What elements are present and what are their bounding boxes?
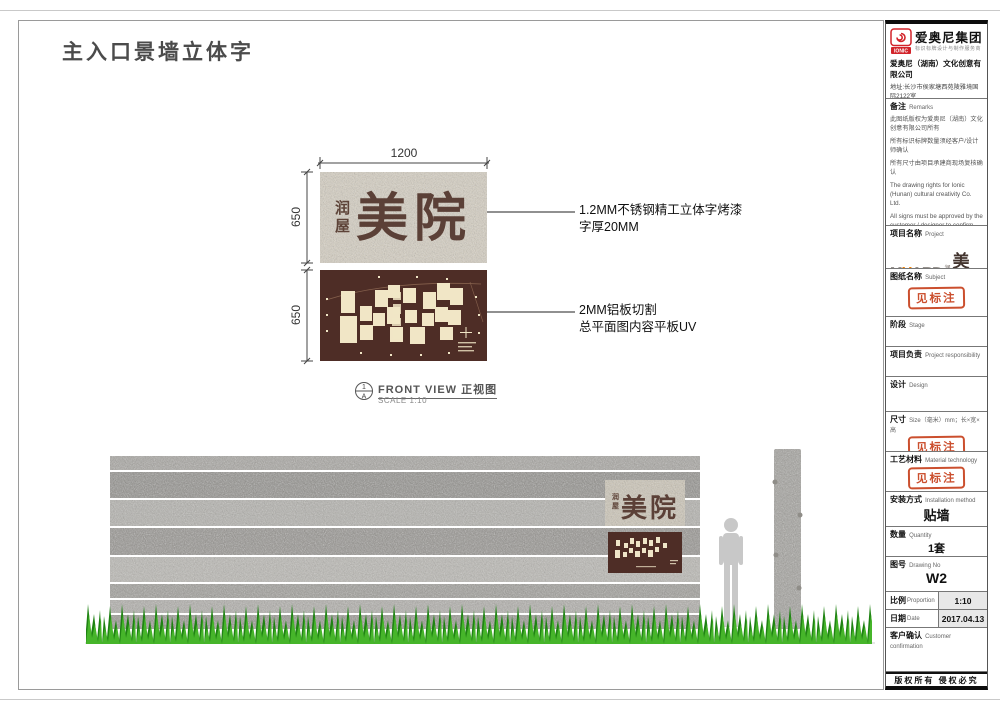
copyright-footer: 版权所有 侵权必究 [886, 672, 987, 686]
title-block: IONIC 爱奥尼集团 标识标牌设计与制作服务商 爱奥尼（湖南）文化创意有限公司… [885, 20, 988, 690]
svg-text:润: 润 [612, 492, 619, 501]
annotation-alu-panel: 2MM铝板切割 总平面图内容平板UV [579, 302, 696, 336]
company-full-name: 爱奥尼（湖南）文化创意有限公司 [890, 58, 983, 80]
svg-text:美院: 美院 [621, 493, 679, 523]
ionic-logo-icon: IONIC [890, 28, 912, 55]
page-bottom-rule [0, 699, 1000, 700]
page-top-rule [0, 10, 1000, 11]
proportion-value: 1:10 [938, 592, 987, 609]
proportion-row: 比例 Proportion 1:10 [886, 592, 987, 610]
company-header: IONIC 爱奥尼集团 标识标牌设计与制作服务商 爱奥尼（湖南）文化创意有限公司… [886, 24, 987, 99]
site-plan-panel [320, 270, 487, 361]
dim-height-label-bottom: 650 [289, 285, 303, 345]
dim-height-label-top: 650 [289, 187, 303, 247]
view-symbol: 1 A [355, 383, 373, 401]
sign-prefix-char2: 屋 [335, 218, 350, 235]
subject-section: 图纸名称 Subject 见标注 [886, 269, 987, 317]
see-note-stamp: 见标注 [908, 287, 965, 310]
myard-project-logo: MYARD 润屋 美院 [890, 247, 983, 269]
svg-text:1: 1 [362, 384, 366, 391]
front-view-scale: SCALE 1:10 [378, 396, 427, 405]
drawing-sheet: 主入口景墙立体字 1 A 1200 650 650 [0, 0, 1000, 707]
quantity-section: 数量 Quantity 1套 [886, 527, 987, 557]
project-section: 项目名称 Project MYARD 润屋 美院 [886, 226, 987, 269]
company-tagline: 标识标牌设计与制作服务商 [915, 45, 983, 52]
customer-confirm-section: 客户确认 Customer confirmation [886, 628, 987, 672]
sign-main-text: 美院 [356, 190, 472, 248]
page-title: 主入口景墙立体字 [62, 36, 254, 66]
annotation-steel-letters: 1.2MM不锈钢精工立体字烤漆 字厚20MM [579, 202, 742, 236]
quantity-value: 1套 [890, 540, 983, 556]
material-section: 工艺材料 Material technology 见标注 [886, 452, 987, 492]
drawing-no-value: W2 [890, 570, 983, 586]
sign-face-panel: 润 屋 美院 [320, 172, 487, 263]
install-value: 贴墙 [890, 505, 983, 524]
svg-text:IONIC: IONIC [894, 49, 908, 55]
dim-width-label: 1200 [378, 146, 430, 160]
see-note-stamp: 见标注 [908, 436, 965, 452]
company-group-name: 爱奥尼集团 [915, 32, 983, 45]
responsibility-section: 项目负责 Project responsibility [886, 347, 987, 377]
design-section: 设计 Design [886, 377, 987, 412]
date-row: 日期 Date 2017.04.13 [886, 610, 987, 628]
grass [86, 600, 872, 644]
see-note-stamp: 见标注 [908, 467, 965, 490]
wall-elevation: 润 屋 美院 [80, 440, 880, 667]
size-section: 尺寸 Size（毫米）mm；长×宽×高 见标注 [886, 412, 987, 452]
drawing-no-section: 图号 Drawing No W2 [886, 557, 987, 592]
date-value: 2017.04.13 [938, 610, 987, 627]
install-section: 安装方式 Installation method 贴墙 [886, 492, 987, 527]
stage-section: 阶段 Stage [886, 317, 987, 347]
remarks-section: 备注 Remarks 此图纸版权为爱奥尼（湖南）文化创意有限公司所有 所有标识标… [886, 99, 987, 226]
company-address: 地址:长沙市侯家塘西苑陵雅境国际2122室 [890, 82, 983, 99]
wall-sign: 润 屋 美院 [605, 480, 685, 573]
sign-prefix-char1: 润 [335, 199, 350, 217]
svg-text:A: A [362, 394, 367, 401]
svg-text:屋: 屋 [612, 501, 619, 510]
